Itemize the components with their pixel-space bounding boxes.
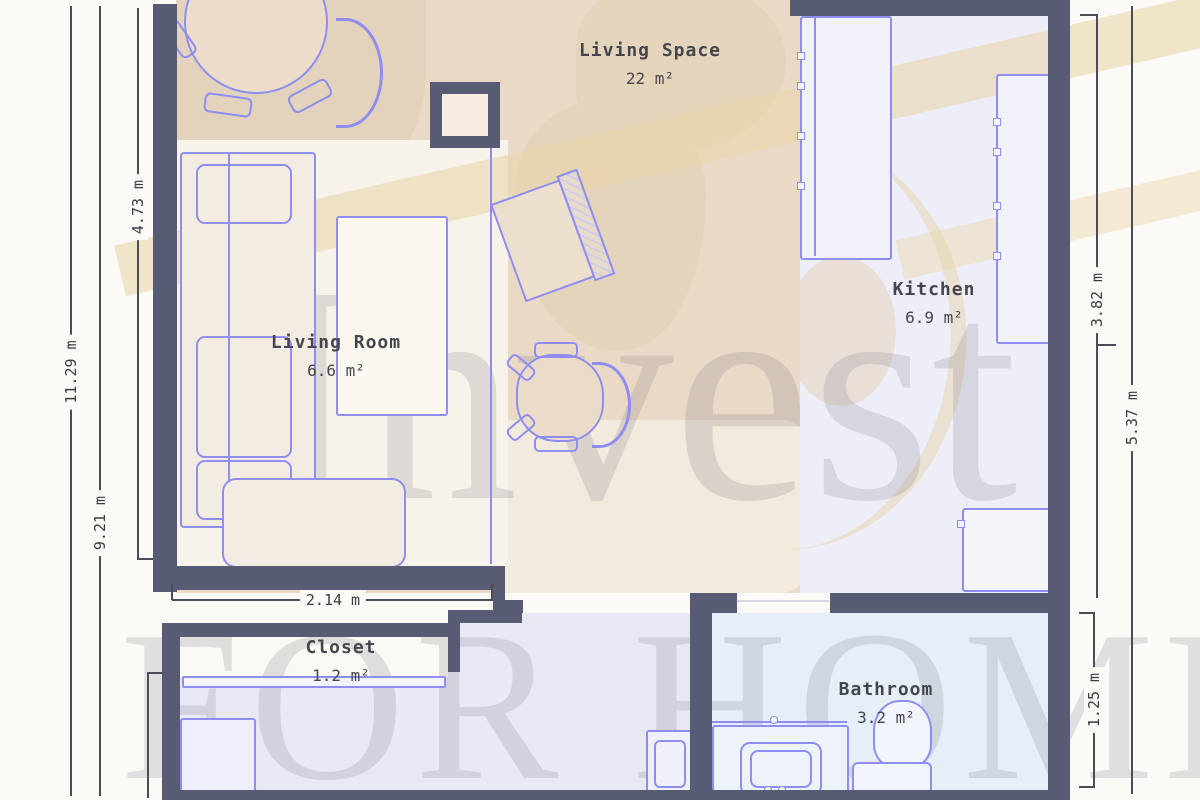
wall-left bbox=[153, 4, 177, 592]
bathroom-sink-basin bbox=[750, 750, 812, 788]
cabinet-knob bbox=[797, 82, 805, 90]
room-label-closet: Closet 1.2 m² bbox=[231, 637, 451, 685]
column-core bbox=[442, 94, 488, 136]
room-area: 6.6 m² bbox=[226, 361, 446, 380]
washer-drum bbox=[654, 740, 686, 788]
cabinet-knob bbox=[993, 202, 1001, 210]
room-label-kitchen: Kitchen 6.9 m² bbox=[824, 279, 1044, 327]
cabinet-knob bbox=[993, 118, 1001, 126]
dimension-tick bbox=[137, 558, 153, 560]
kitchen-counter-left-edge bbox=[814, 16, 816, 256]
appliance-knob bbox=[957, 520, 965, 528]
chaise-ottoman bbox=[222, 478, 406, 568]
dimension-label-left-middle: 9.21 m bbox=[90, 490, 110, 556]
dimension-tick bbox=[491, 584, 493, 600]
dimension-line-left-middle bbox=[99, 6, 101, 796]
room-name: Living Space bbox=[540, 40, 760, 61]
dimension-label-right-inner-top: 3.82 m bbox=[1087, 267, 1107, 333]
room-name: Kitchen bbox=[824, 279, 1044, 300]
wall-kitchen-top bbox=[790, 0, 1070, 16]
cabinet-knob bbox=[797, 182, 805, 190]
dimension-line-closet bbox=[147, 672, 149, 798]
wall-closet-top bbox=[162, 623, 460, 637]
wall-closet-left bbox=[162, 637, 180, 800]
cabinet-knob bbox=[797, 132, 805, 140]
dimension-label-bottom: 2.14 m bbox=[300, 590, 366, 610]
dimension-tick bbox=[1080, 14, 1096, 16]
room-area: 6.9 m² bbox=[824, 308, 1044, 327]
closet-wardrobe bbox=[180, 718, 256, 800]
dimension-tick bbox=[1079, 786, 1094, 788]
wall-living-bottom bbox=[153, 566, 497, 590]
dimension-tick bbox=[171, 584, 173, 600]
dimension-label-left-outer: 11.29 m bbox=[61, 334, 81, 409]
bathroom-door-leaf bbox=[737, 600, 829, 602]
room-area: 1.2 m² bbox=[231, 666, 451, 685]
wall-kitchen-right bbox=[1048, 0, 1070, 613]
dimension-label-right-outer: 5.37 m bbox=[1122, 385, 1142, 451]
cabinet-knob bbox=[993, 148, 1001, 156]
wall-hall-top bbox=[448, 610, 522, 623]
room-label-living-space: Living Space 22 m² bbox=[540, 40, 760, 88]
dimension-label-right-inner-bottom: 1.25 m bbox=[1084, 667, 1104, 733]
table-chair bbox=[534, 342, 578, 358]
room-label-living-room: Living Room 6.6 m² bbox=[226, 332, 446, 380]
room-area: 3.2 m² bbox=[776, 708, 996, 727]
cabinet-knob bbox=[797, 52, 805, 60]
room-name: Closet bbox=[231, 637, 451, 658]
room-divider-line bbox=[490, 140, 492, 564]
dimension-line-left-inner bbox=[137, 8, 139, 560]
dimension-label-left-inner: 4.73 m bbox=[128, 174, 148, 240]
wall-bath-left bbox=[690, 593, 712, 800]
wall-bath-right bbox=[1048, 613, 1070, 800]
sofa-cushion bbox=[196, 164, 292, 224]
floor-plan-canvas: Invest FOR HOME bbox=[0, 0, 1200, 800]
wall-kitchen-bottom bbox=[830, 593, 1070, 613]
wall-bottom bbox=[162, 790, 1070, 800]
cabinet-knob bbox=[993, 252, 1001, 260]
room-label-bathroom: Bathroom 3.2 m² bbox=[776, 679, 996, 727]
coffee-table bbox=[336, 216, 448, 416]
room-area: 22 m² bbox=[540, 69, 760, 88]
dimension-tick bbox=[1096, 344, 1116, 346]
table-chair bbox=[534, 436, 578, 452]
dimension-tick bbox=[1079, 612, 1094, 614]
room-name: Bathroom bbox=[776, 679, 996, 700]
kitchen-appliance bbox=[962, 508, 1052, 592]
room-name: Living Room bbox=[226, 332, 446, 353]
structural-column bbox=[430, 82, 500, 148]
dimension-tick bbox=[147, 672, 163, 674]
